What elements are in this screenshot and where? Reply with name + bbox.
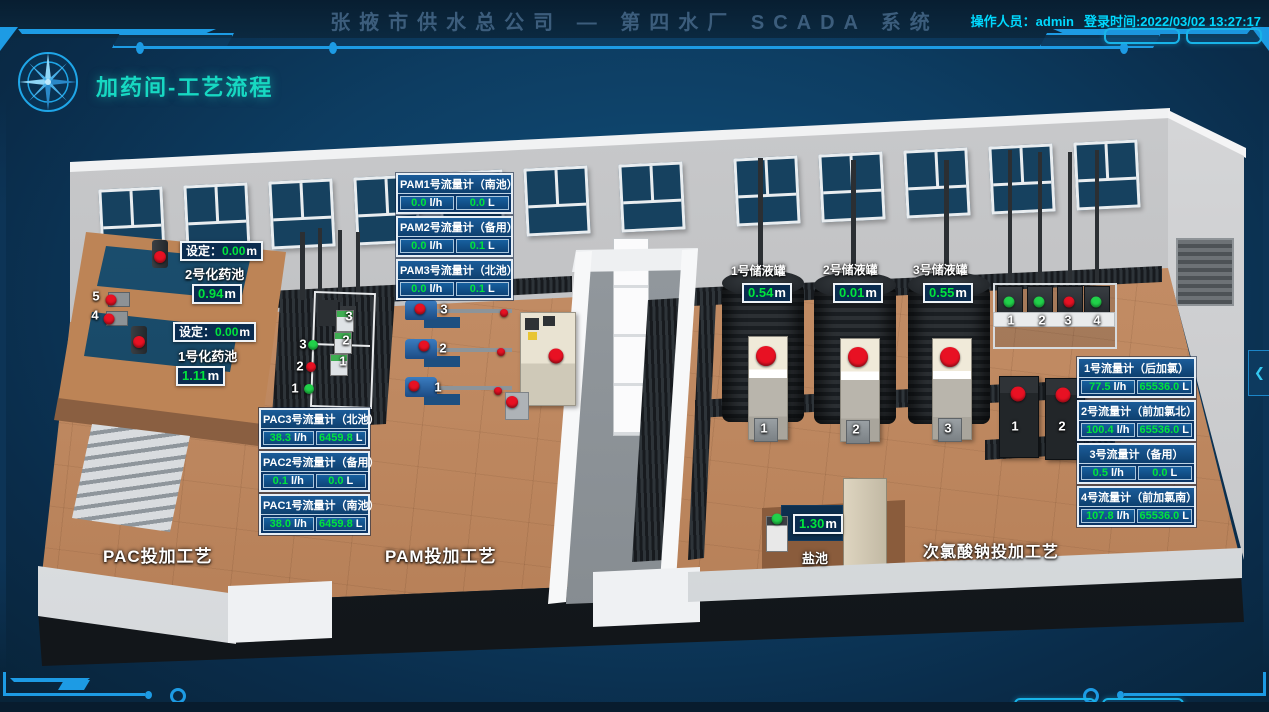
flow-value: 0.0 bbox=[411, 197, 426, 209]
pool-setpoint-badge: 设定：0.00m bbox=[180, 241, 263, 261]
station-device bbox=[528, 332, 537, 340]
pool-name: 1号化药池 bbox=[178, 346, 237, 365]
pool-level-unit: m bbox=[208, 368, 220, 383]
status-light bbox=[419, 341, 430, 352]
flow-panel-title: 4号流量计（前加氯南） bbox=[1079, 488, 1194, 507]
window bbox=[523, 165, 590, 236]
flow-panel-title: PAC1号流量计（南池） bbox=[261, 496, 368, 515]
pipe bbox=[1095, 150, 1099, 285]
flow-panel: PAC3号流量计（北池） 38.3l/h6459.8L bbox=[259, 408, 370, 449]
flow-value: 38.0 bbox=[270, 518, 291, 530]
deco-dot bbox=[136, 42, 144, 54]
total-value: 0.0 bbox=[470, 197, 485, 209]
flow-cell: 77.5l/h bbox=[1081, 380, 1135, 394]
station-device bbox=[543, 316, 555, 326]
total-cell: 65536.0L bbox=[1137, 423, 1193, 437]
flow-unit: l/h bbox=[1117, 510, 1130, 522]
total-unit: L bbox=[488, 283, 495, 295]
pipe bbox=[300, 232, 305, 300]
tank-level: 0.01 bbox=[839, 285, 864, 300]
total-value: 6459.8 bbox=[319, 432, 353, 444]
status-light bbox=[1034, 297, 1045, 308]
equipment-number: 3 bbox=[299, 337, 306, 352]
compass-icon bbox=[16, 50, 80, 114]
scada-screen: 张掖市供水总公司 — 第四水厂 SCADA 系统 操作人员：admin登录时间:… bbox=[0, 0, 1269, 712]
flow-value: 107.8 bbox=[1086, 510, 1114, 522]
equipment-number: 2 bbox=[296, 359, 303, 374]
status-light bbox=[1064, 297, 1075, 308]
total-unit: L bbox=[1182, 510, 1189, 522]
window bbox=[618, 161, 685, 232]
flow-unit: l/h bbox=[294, 518, 307, 530]
status-light bbox=[500, 309, 508, 317]
status-light bbox=[1011, 387, 1026, 402]
flow-panel: PAM3号流量计（北池） 0.0l/h0.1L bbox=[396, 259, 513, 300]
status-light bbox=[497, 348, 505, 356]
login-time: 登录时间:2022/03/02 13:27:17 bbox=[1084, 14, 1261, 29]
setpoint-label: 设定： bbox=[179, 325, 215, 339]
status-light bbox=[848, 347, 868, 367]
equipment-number: 1 bbox=[1007, 313, 1014, 328]
flow-panel-title: 1号流量计（后加氯） bbox=[1079, 359, 1194, 378]
flow-value: 0.1 bbox=[273, 475, 288, 487]
equipment-number: 4 bbox=[91, 308, 98, 323]
status-light bbox=[304, 384, 314, 394]
total-unit: L bbox=[356, 432, 363, 444]
equipment-number: 3 bbox=[345, 309, 352, 324]
flow-unit: l/h bbox=[429, 283, 442, 295]
equipment-number: 1 bbox=[291, 381, 298, 396]
collapse-left-icon: ❮ bbox=[1254, 365, 1265, 381]
flow-value: 77.5 bbox=[1089, 381, 1110, 393]
status-light bbox=[1091, 297, 1102, 308]
equipment-number: 1 bbox=[434, 380, 441, 395]
flow-cell: 0.0l/h bbox=[400, 282, 454, 296]
pam-flowmeter-panels: PAM1号流量计（南池） 0.0l/h0.0L PAM2号流量计（备用） 0.0… bbox=[396, 173, 513, 300]
total-unit: L bbox=[488, 240, 495, 252]
flow-cell: 0.5l/h bbox=[1081, 466, 1136, 480]
area-label-pac: PAC投加工艺 bbox=[103, 542, 213, 567]
deco-line bbox=[3, 693, 145, 696]
deco-dot bbox=[329, 42, 337, 54]
status-light bbox=[154, 251, 166, 263]
pool-name: 2号化药池 bbox=[185, 264, 244, 283]
status-light bbox=[409, 381, 420, 392]
flow-cell: 107.8l/h bbox=[1081, 509, 1135, 523]
flow-value: 0.0 bbox=[411, 240, 426, 252]
flow-unit: l/h bbox=[1114, 381, 1127, 393]
pac-flowmeter-panels: PAC3号流量计（北池） 38.3l/h6459.8L PAC2号流量计（备用）… bbox=[259, 408, 370, 535]
flow-value: 0.0 bbox=[411, 283, 426, 295]
total-unit: L bbox=[488, 197, 495, 209]
equipment-number: 4 bbox=[1093, 313, 1100, 328]
flow-panel-title: PAM1号流量计（南池） bbox=[398, 175, 511, 194]
area-label-pam: PAM投加工艺 bbox=[385, 542, 497, 567]
flow-panel-title: 3号流量计（备用） bbox=[1079, 445, 1194, 464]
tank-level: 0.55 bbox=[929, 285, 954, 300]
window bbox=[1073, 139, 1140, 210]
flow-panel-title: PAM2号流量计（备用） bbox=[398, 218, 511, 237]
window bbox=[733, 155, 800, 226]
flow-value: 100.4 bbox=[1086, 424, 1114, 436]
saturator-tank bbox=[843, 478, 887, 578]
flow-panel: 3号流量计（备用） 0.5l/h0.0L bbox=[1077, 443, 1196, 484]
louver-panel bbox=[1176, 238, 1234, 306]
deco-dot bbox=[145, 691, 152, 699]
pipe bbox=[1008, 150, 1012, 285]
equipment-number: 2 bbox=[342, 333, 349, 348]
tank-name: 3号储液罐 bbox=[913, 261, 968, 278]
pool-level-unit: m bbox=[224, 286, 236, 301]
equipment-number: 5 bbox=[92, 289, 99, 304]
total-unit: L bbox=[1171, 467, 1178, 479]
setpoint-unit: m bbox=[239, 325, 250, 339]
flow-panel: 4号流量计（前加氯南） 107.8l/h65536.0L bbox=[1077, 486, 1196, 527]
flow-panel: 1号流量计（后加氯） 77.5l/h65536.0L bbox=[1077, 357, 1196, 398]
tank-level-badge: 0.01m bbox=[833, 283, 883, 303]
flow-panel: PAM1号流量计（南池） 0.0l/h0.0L bbox=[396, 173, 513, 214]
salt-pool-level-unit: m bbox=[825, 516, 837, 531]
total-unit: L bbox=[1182, 424, 1189, 436]
status-light bbox=[106, 295, 117, 306]
pool-setpoint-badge: 设定：0.00m bbox=[173, 322, 256, 342]
bottom-band bbox=[0, 702, 1269, 712]
status-light bbox=[104, 314, 115, 325]
status-light bbox=[1004, 297, 1015, 308]
total-value: 65536.0 bbox=[1140, 510, 1180, 522]
flow-unit: l/h bbox=[429, 197, 442, 209]
total-value: 0.1 bbox=[470, 283, 485, 295]
flow-unit: l/h bbox=[291, 475, 304, 487]
deco-line bbox=[1124, 693, 1266, 696]
flow-cell: 100.4l/h bbox=[1081, 423, 1135, 437]
flow-cell: 0.1l/h bbox=[263, 474, 314, 488]
pool-level-badge: 1.11m bbox=[176, 366, 225, 386]
tank-level-badge: 0.55m bbox=[923, 283, 973, 303]
total-cell: 0.0L bbox=[456, 196, 510, 210]
flow-cell: 38.0l/h bbox=[263, 517, 314, 531]
deco-pill bbox=[1104, 28, 1180, 44]
tank-name: 1号储液罐 bbox=[731, 262, 786, 279]
tank-level-unit: m bbox=[774, 285, 786, 300]
tank-level-badge: 0.54m bbox=[742, 283, 792, 303]
flow-panel: 2号流量计（前加氯北） 100.4l/h65536.0L bbox=[1077, 400, 1196, 441]
chlorine-flowmeter-panels: 1号流量计（后加氯） 77.5l/h65536.0L 2号流量计（前加氯北） 1… bbox=[1077, 357, 1196, 527]
setpoint-label: 设定： bbox=[186, 244, 222, 258]
equipment-number: 2 bbox=[1038, 313, 1045, 328]
total-cell: 65536.0L bbox=[1137, 380, 1193, 394]
equipment-number: 1 bbox=[339, 354, 346, 369]
equipment-number: 3 bbox=[1064, 313, 1071, 328]
flow-panel: PAM2号流量计（备用） 0.0l/h0.1L bbox=[396, 216, 513, 257]
flow-panel-title: PAC3号流量计（北池） bbox=[261, 410, 368, 429]
salt-pool-level-badge: 1.30m bbox=[793, 514, 843, 534]
setpoint-value: 0.00 bbox=[222, 244, 245, 258]
deco-line bbox=[140, 46, 1125, 49]
total-cell: 0.0L bbox=[1138, 466, 1193, 480]
collapse-panel-handle[interactable]: ❮ bbox=[1248, 350, 1269, 396]
total-value: 0.0 bbox=[1152, 467, 1167, 479]
status-light bbox=[756, 346, 776, 366]
total-cell: 6459.8L bbox=[316, 517, 367, 531]
setpoint-value: 0.00 bbox=[215, 325, 238, 339]
flow-value: 38.3 bbox=[270, 432, 291, 444]
flow-unit: l/h bbox=[429, 240, 442, 252]
flow-panel: PAC1号流量计（南池） 38.0l/h6459.8L bbox=[259, 494, 370, 535]
flow-cell: 38.3l/h bbox=[263, 431, 314, 445]
pipe bbox=[1038, 152, 1042, 285]
salt-pool-name: 盐池 bbox=[802, 548, 828, 567]
pipe bbox=[1068, 152, 1072, 285]
equipment-number: 3 bbox=[944, 421, 951, 436]
equipment-number: 2 bbox=[439, 341, 446, 356]
total-cell: 0.1L bbox=[456, 239, 510, 253]
tank-level-unit: m bbox=[865, 285, 877, 300]
flow-value: 0.5 bbox=[1093, 467, 1108, 479]
left-edge-strip bbox=[0, 96, 6, 671]
total-value: 6459.8 bbox=[319, 518, 353, 530]
status-light bbox=[549, 349, 564, 364]
status-light bbox=[772, 514, 783, 525]
tank-level-unit: m bbox=[955, 285, 967, 300]
status-light bbox=[506, 396, 518, 408]
flow-unit: l/h bbox=[1117, 424, 1130, 436]
total-cell: 65536.0L bbox=[1137, 509, 1193, 523]
total-cell: 0.0L bbox=[316, 474, 367, 488]
status-light bbox=[308, 340, 318, 350]
setpoint-unit: m bbox=[246, 244, 257, 258]
flow-panel: PAC2号流量计（备用） 0.1l/h0.0L bbox=[259, 451, 370, 492]
equipment-number: 1 bbox=[760, 421, 767, 436]
status-light bbox=[494, 387, 502, 395]
total-unit: L bbox=[356, 518, 363, 530]
page-title: 加药间-工艺流程 bbox=[96, 70, 273, 102]
station-device bbox=[525, 318, 539, 330]
window bbox=[903, 147, 970, 218]
flow-panel-title: PAM3号流量计（北池） bbox=[398, 261, 511, 280]
window bbox=[988, 143, 1055, 214]
total-unit: L bbox=[1182, 381, 1189, 393]
total-value: 65536.0 bbox=[1140, 424, 1180, 436]
total-value: 0.0 bbox=[328, 475, 343, 487]
tank-level: 0.54 bbox=[748, 285, 773, 300]
flow-panel-title: PAC2号流量计（备用） bbox=[261, 453, 368, 472]
corner-triangle-left bbox=[0, 27, 18, 51]
status-light bbox=[940, 347, 960, 367]
flow-unit: l/h bbox=[1111, 467, 1124, 479]
deco-pill bbox=[1186, 28, 1262, 44]
salt-pool-level: 1.30 bbox=[799, 516, 824, 531]
pac-equipment bbox=[318, 300, 338, 326]
equipment-number: 2 bbox=[1058, 419, 1065, 434]
flow-panel-title: 2号流量计（前加氯北） bbox=[1079, 402, 1194, 421]
operator-name: 操作人员：admin bbox=[971, 14, 1074, 29]
status-light bbox=[306, 362, 316, 372]
status-light bbox=[133, 336, 145, 348]
area-label-chlorine: 次氯酸钠投加工艺 bbox=[923, 538, 1059, 562]
total-unit: L bbox=[347, 475, 354, 487]
pool-level: 1.11 bbox=[182, 368, 207, 383]
pool-level: 0.94 bbox=[198, 286, 223, 301]
equipment-number: 3 bbox=[440, 302, 447, 317]
total-value: 65536.0 bbox=[1140, 381, 1180, 393]
total-value: 0.1 bbox=[470, 240, 485, 252]
total-cell: 6459.8L bbox=[316, 431, 367, 445]
status-light bbox=[1056, 388, 1071, 403]
flow-cell: 0.0l/h bbox=[400, 196, 454, 210]
pool-level-badge: 0.94m bbox=[192, 284, 242, 304]
flow-cell: 0.0l/h bbox=[400, 239, 454, 253]
cabinet-column bbox=[613, 238, 649, 436]
status-light bbox=[415, 304, 426, 315]
tank-name: 2号储液罐 bbox=[823, 261, 878, 278]
total-cell: 0.1L bbox=[456, 282, 510, 296]
flow-unit: l/h bbox=[294, 432, 307, 444]
equipment-number: 1 bbox=[1011, 419, 1018, 434]
equipment-number: 2 bbox=[852, 422, 859, 437]
